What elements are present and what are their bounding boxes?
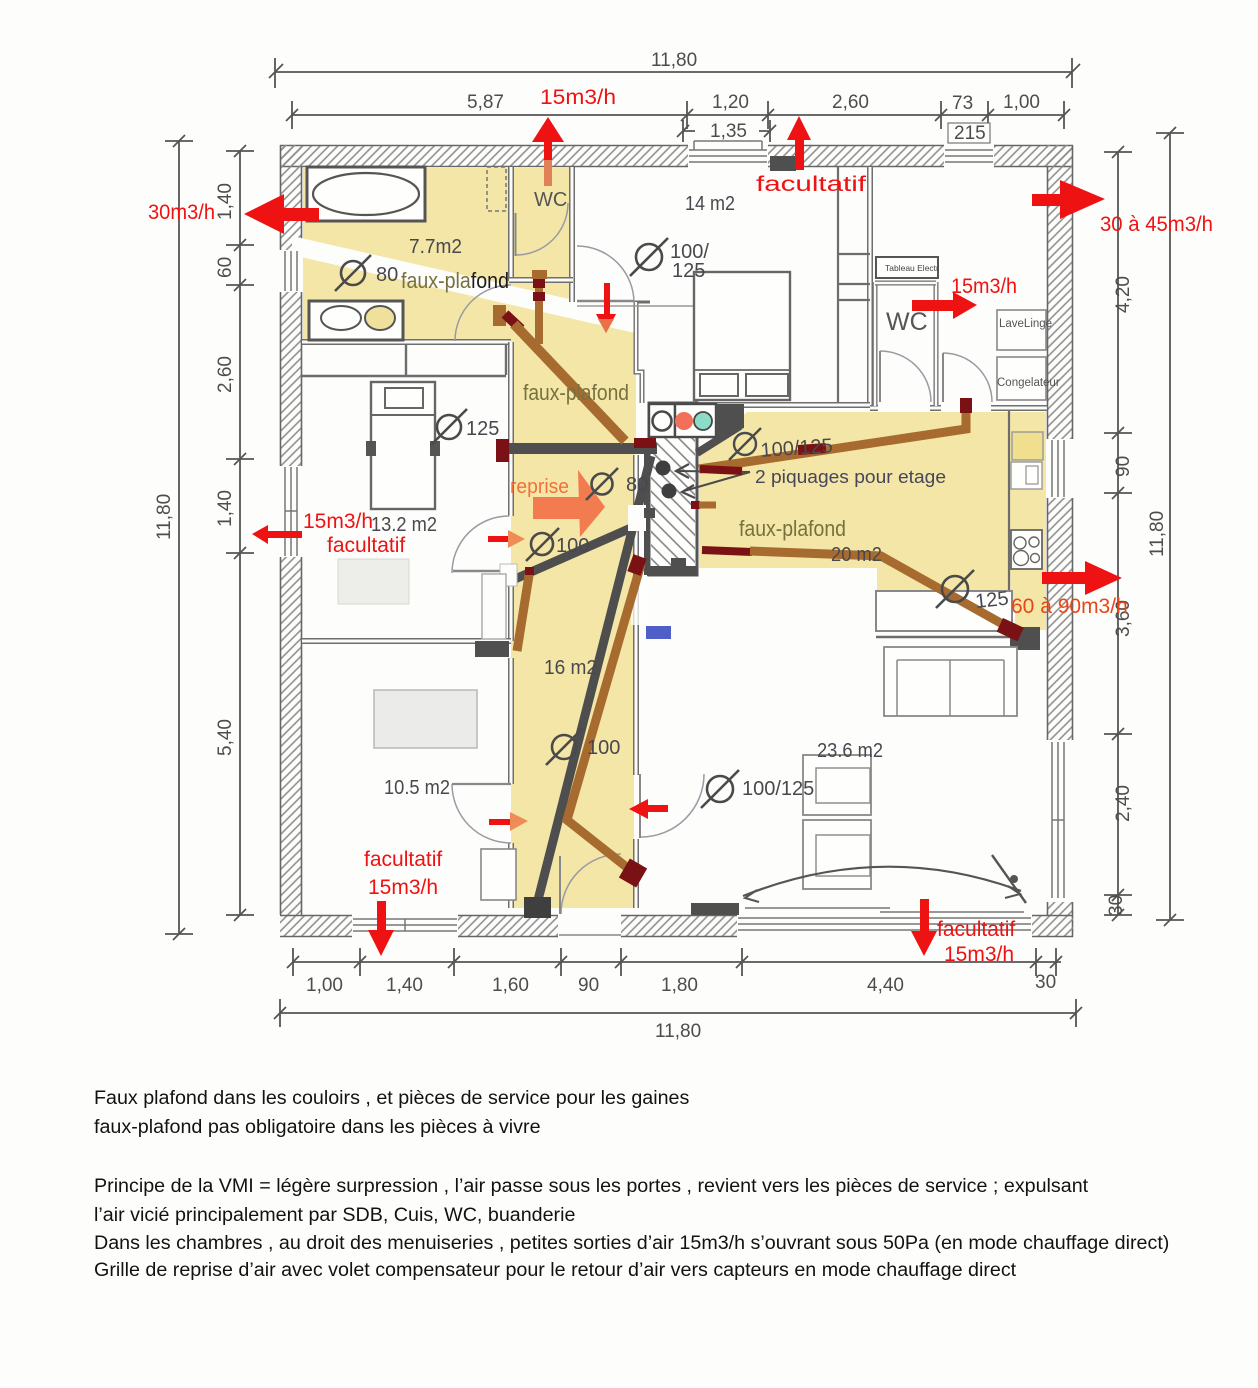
svg-text:WC: WC — [534, 189, 567, 211]
svg-text:14 m2: 14 m2 — [685, 193, 735, 215]
svg-text:1,80: 1,80 — [661, 975, 698, 996]
svg-text:LaveLinge: LaveLinge — [999, 318, 1052, 330]
svg-text:reprise: reprise — [510, 476, 569, 498]
svg-text:faux-plafond pas obligatoire d: faux-plafond pas obligatoire dans les pi… — [94, 1116, 541, 1138]
svg-text:90: 90 — [1113, 456, 1134, 477]
svg-text:1,60: 1,60 — [492, 975, 529, 996]
svg-text:faux-plafond: faux-plafond — [523, 380, 629, 405]
svg-text:60: 60 — [215, 257, 236, 278]
svg-text:Faux plafond dans les couloirs: Faux plafond dans les couloirs , et pièc… — [94, 1087, 689, 1109]
svg-text:1,40: 1,40 — [215, 183, 236, 220]
svg-text:15m3/h: 15m3/h — [540, 86, 616, 109]
svg-text:11,80: 11,80 — [655, 1021, 701, 1042]
svg-text:20 m2: 20 m2 — [831, 544, 882, 566]
svg-text:10.5 m2: 10.5 m2 — [384, 777, 450, 799]
svg-text:15m3/h: 15m3/h — [944, 943, 1014, 966]
svg-text:1,40: 1,40 — [386, 975, 423, 996]
svg-text:faux-plafond: faux-plafond — [739, 516, 846, 541]
svg-text:1,20: 1,20 — [712, 92, 749, 113]
svg-text:1,40: 1,40 — [215, 490, 236, 527]
svg-text:30: 30 — [1035, 972, 1056, 993]
svg-text:11,80: 11,80 — [154, 494, 175, 540]
svg-text:facultatif: facultatif — [364, 848, 442, 871]
svg-text:11,80: 11,80 — [651, 50, 697, 71]
svg-text:11,80: 11,80 — [1147, 511, 1168, 557]
svg-text:2,60: 2,60 — [215, 356, 236, 393]
svg-text:5,40: 5,40 — [215, 719, 236, 756]
svg-text:Principe de la VMI = légère su: Principe de la VMI = légère surpression … — [94, 1175, 1089, 1197]
svg-text:100/125: 100/125 — [742, 778, 814, 800]
svg-text:faux-plafond: faux-plafond — [401, 268, 509, 293]
svg-text:30 à 45m3/h: 30 à 45m3/h — [1100, 213, 1213, 236]
svg-text:2,60: 2,60 — [832, 92, 869, 113]
svg-text:23.6 m2: 23.6 m2 — [817, 740, 883, 762]
svg-text:5,87: 5,87 — [467, 92, 504, 113]
svg-text:1,00: 1,00 — [306, 975, 343, 996]
svg-text:1,00: 1,00 — [1003, 92, 1040, 113]
svg-text:215: 215 — [954, 123, 986, 144]
svg-text:90: 90 — [578, 975, 599, 996]
svg-text:15m3/h: 15m3/h — [368, 876, 438, 899]
svg-text:80: 80 — [626, 474, 648, 496]
svg-text:7.7m2: 7.7m2 — [409, 236, 462, 258]
svg-text:Tableau Electr: Tableau Electr — [885, 263, 939, 273]
svg-text:15m3/h: 15m3/h — [303, 510, 373, 533]
svg-text:100: 100 — [587, 737, 620, 759]
svg-text:2 piquages pour etage: 2 piquages pour etage — [755, 467, 946, 487]
svg-text:30: 30 — [1106, 895, 1127, 916]
svg-text:Dans les chambres , au droit d: Dans les chambres , au droit des menuise… — [94, 1232, 1169, 1254]
svg-text:2,40: 2,40 — [1113, 785, 1134, 822]
svg-text:60 à 90m3/h: 60 à 90m3/h — [1011, 595, 1128, 618]
svg-text:125: 125 — [974, 588, 1009, 613]
svg-text:l’air vicié principalement par: l’air vicié principalement par SDB, Cuis… — [94, 1204, 575, 1226]
svg-text:15m3/h: 15m3/h — [951, 275, 1017, 298]
svg-text:4,20: 4,20 — [1113, 276, 1134, 313]
svg-text:30m3/h: 30m3/h — [148, 201, 215, 224]
svg-text:1,35: 1,35 — [710, 121, 747, 142]
svg-text:facultatif: facultatif — [756, 173, 866, 196]
svg-text:16 m2: 16 m2 — [544, 657, 597, 679]
svg-text:13.2 m2: 13.2 m2 — [371, 514, 437, 536]
svg-text:facultatif: facultatif — [937, 918, 1015, 941]
svg-text:125: 125 — [672, 260, 705, 282]
svg-text:4,40: 4,40 — [867, 975, 904, 996]
svg-text:100: 100 — [556, 535, 589, 557]
svg-text:Congelateur: Congelateur — [997, 377, 1060, 389]
svg-text:73: 73 — [952, 93, 973, 114]
svg-text:80: 80 — [376, 264, 398, 286]
svg-text:125: 125 — [466, 418, 499, 440]
svg-text:facultatif: facultatif — [327, 534, 405, 557]
svg-text:WC: WC — [886, 308, 928, 336]
svg-text:Grille de reprise d’air avec v: Grille de reprise d’air avec volet compe… — [94, 1259, 1017, 1281]
